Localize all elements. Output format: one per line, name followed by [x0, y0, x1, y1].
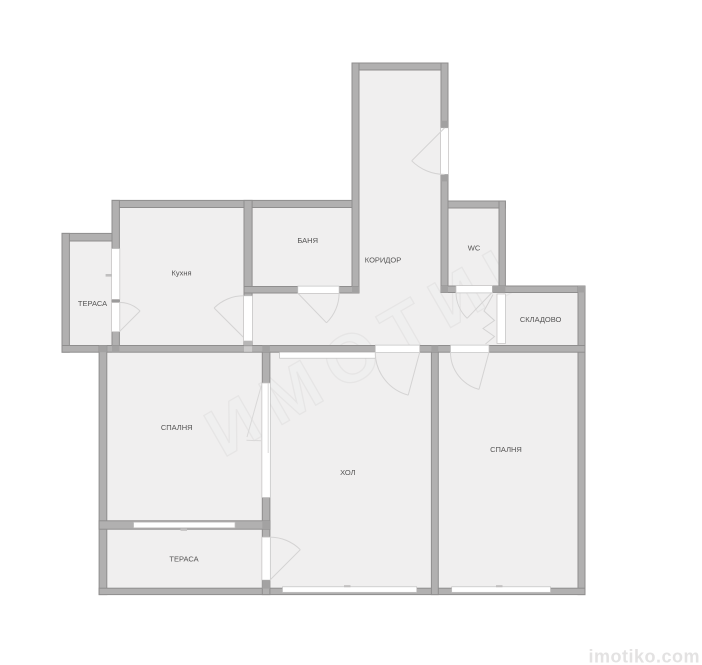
svg-text:БАНЯ: БАНЯ [297, 236, 318, 245]
svg-text:WC: WC [468, 244, 481, 253]
svg-text:imotiko.com: imotiko.com [588, 647, 700, 665]
svg-text:КОРИДОР: КОРИДОР [365, 255, 401, 264]
svg-text:Кухня: Кухня [171, 269, 191, 278]
svg-text:СПАЛНЯ: СПАЛНЯ [161, 423, 193, 432]
svg-text:ХОЛ: ХОЛ [340, 468, 356, 477]
svg-text:СПАЛНЯ: СПАЛНЯ [490, 445, 522, 454]
svg-text:ТЕРАСА: ТЕРАСА [169, 555, 198, 564]
svg-text:ТЕРАСА: ТЕРАСА [78, 299, 107, 308]
svg-text:СКЛАДОВО: СКЛАДОВО [520, 315, 562, 324]
